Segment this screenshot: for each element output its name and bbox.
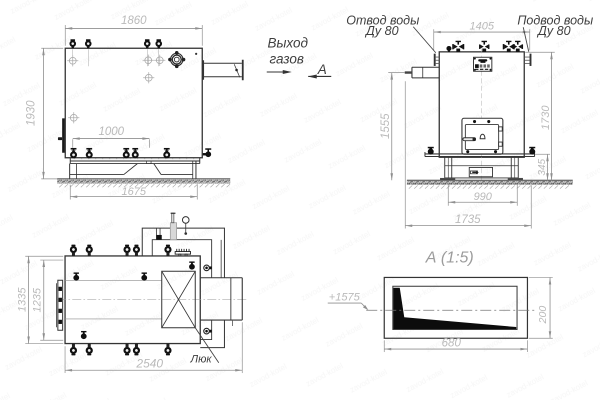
svg-text:Люк: Люк [190, 354, 213, 366]
svg-text:1860: 1860 [121, 15, 147, 27]
svg-text:+1575: +1575 [329, 291, 361, 303]
svg-text:1335: 1335 [16, 287, 28, 312]
svg-text:А (1:5): А (1:5) [425, 249, 474, 266]
svg-text:1675: 1675 [122, 186, 147, 198]
svg-text:Выход: Выход [267, 36, 308, 51]
svg-text:1930: 1930 [25, 100, 37, 126]
svg-text:А: А [317, 62, 327, 77]
svg-text:345: 345 [537, 158, 548, 175]
svg-text:990: 990 [474, 191, 493, 203]
svg-text:200: 200 [537, 306, 549, 325]
svg-text:Ду 80: Ду 80 [536, 24, 571, 38]
svg-text:газов: газов [270, 51, 304, 66]
svg-text:1235: 1235 [32, 287, 44, 312]
svg-text:680: 680 [442, 338, 462, 350]
svg-text:1735: 1735 [455, 214, 481, 226]
svg-text:1555: 1555 [380, 113, 392, 139]
svg-text:Ду 80: Ду 80 [364, 24, 399, 38]
svg-text:2540: 2540 [135, 357, 163, 371]
svg-text:1730: 1730 [540, 105, 552, 130]
svg-text:1000: 1000 [98, 126, 124, 138]
svg-text:1405: 1405 [470, 20, 495, 32]
